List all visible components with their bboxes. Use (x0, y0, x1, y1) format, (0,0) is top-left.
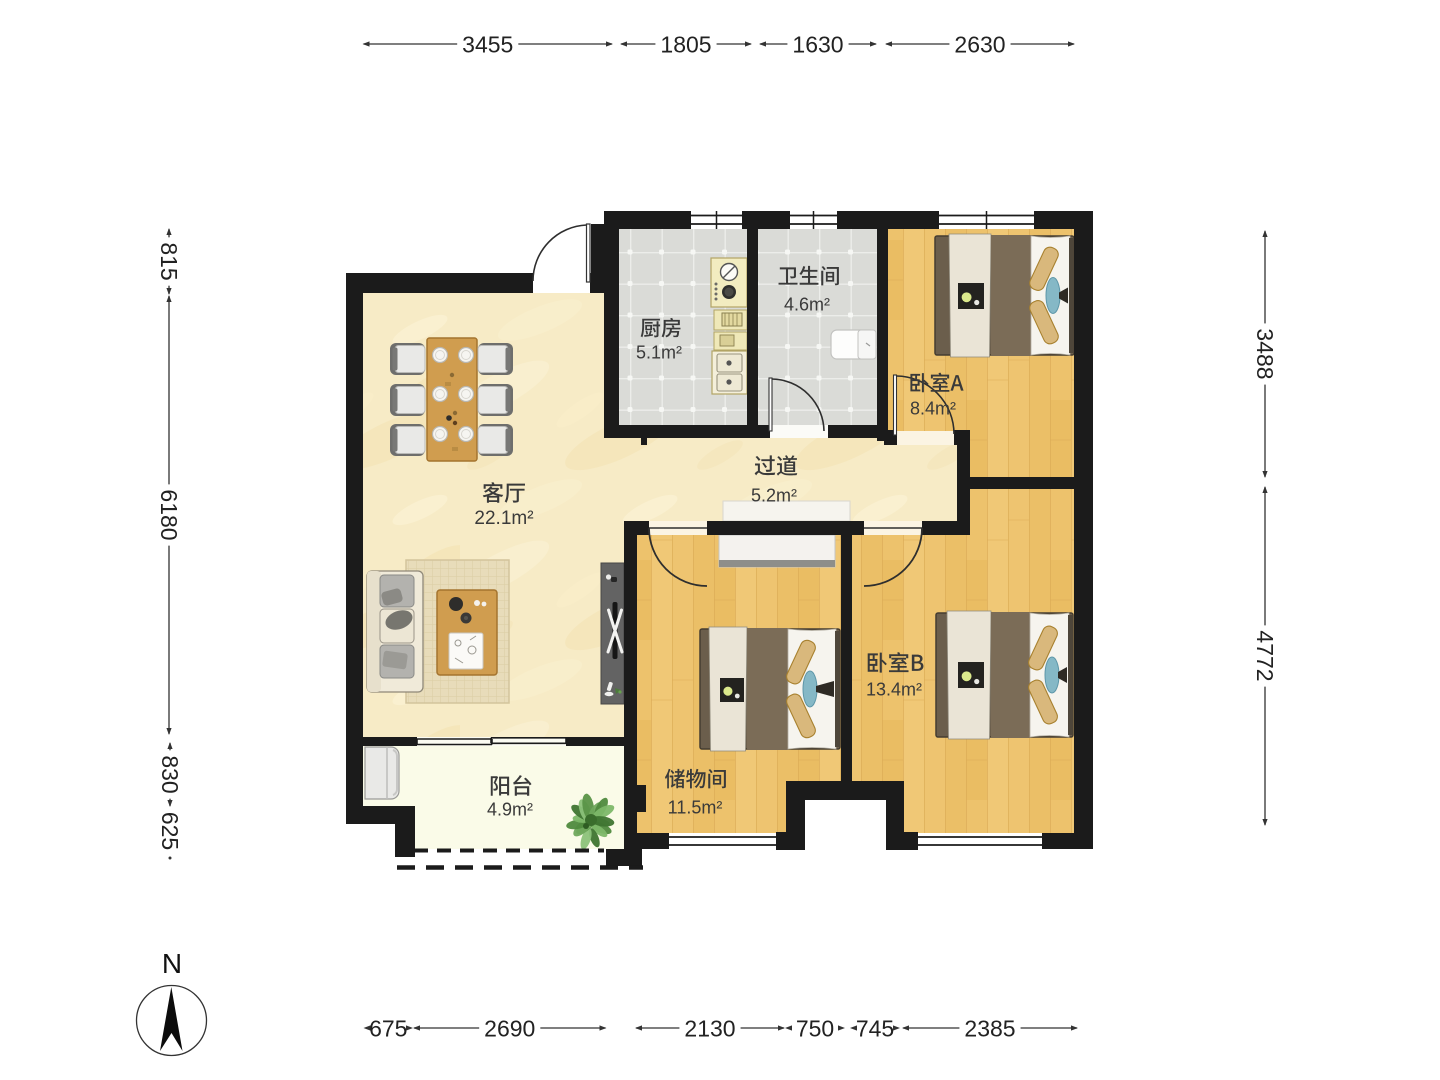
svg-text:625: 625 (157, 812, 183, 850)
svg-text:5.2m²: 5.2m² (751, 485, 797, 505)
svg-text:745: 745 (856, 1015, 894, 1041)
svg-text:4.6m²: 4.6m² (784, 294, 830, 314)
svg-text:4.9m²: 4.9m² (487, 799, 533, 819)
svg-text:830: 830 (157, 755, 183, 793)
svg-text:2690: 2690 (484, 1015, 535, 1041)
svg-text:2630: 2630 (954, 31, 1005, 57)
svg-text:1805: 1805 (660, 31, 711, 57)
svg-text:N: N (162, 948, 182, 979)
svg-text:5.1m²: 5.1m² (636, 342, 682, 362)
svg-text:750: 750 (796, 1015, 834, 1041)
svg-text:1630: 1630 (792, 31, 843, 57)
svg-text:11.5m²: 11.5m² (668, 797, 723, 817)
svg-text:2385: 2385 (964, 1015, 1015, 1041)
svg-text:22.1m²: 22.1m² (474, 508, 533, 529)
svg-text:8.4m²: 8.4m² (910, 398, 956, 418)
svg-text:6180: 6180 (156, 489, 182, 540)
svg-text:2130: 2130 (684, 1015, 735, 1041)
svg-text:3488: 3488 (1252, 328, 1278, 379)
svg-text:675: 675 (369, 1015, 407, 1041)
svg-text:3455: 3455 (462, 31, 513, 57)
svg-text:815: 815 (156, 242, 182, 280)
svg-text:13.4m²: 13.4m² (866, 679, 922, 699)
svg-text:4772: 4772 (1252, 630, 1278, 681)
